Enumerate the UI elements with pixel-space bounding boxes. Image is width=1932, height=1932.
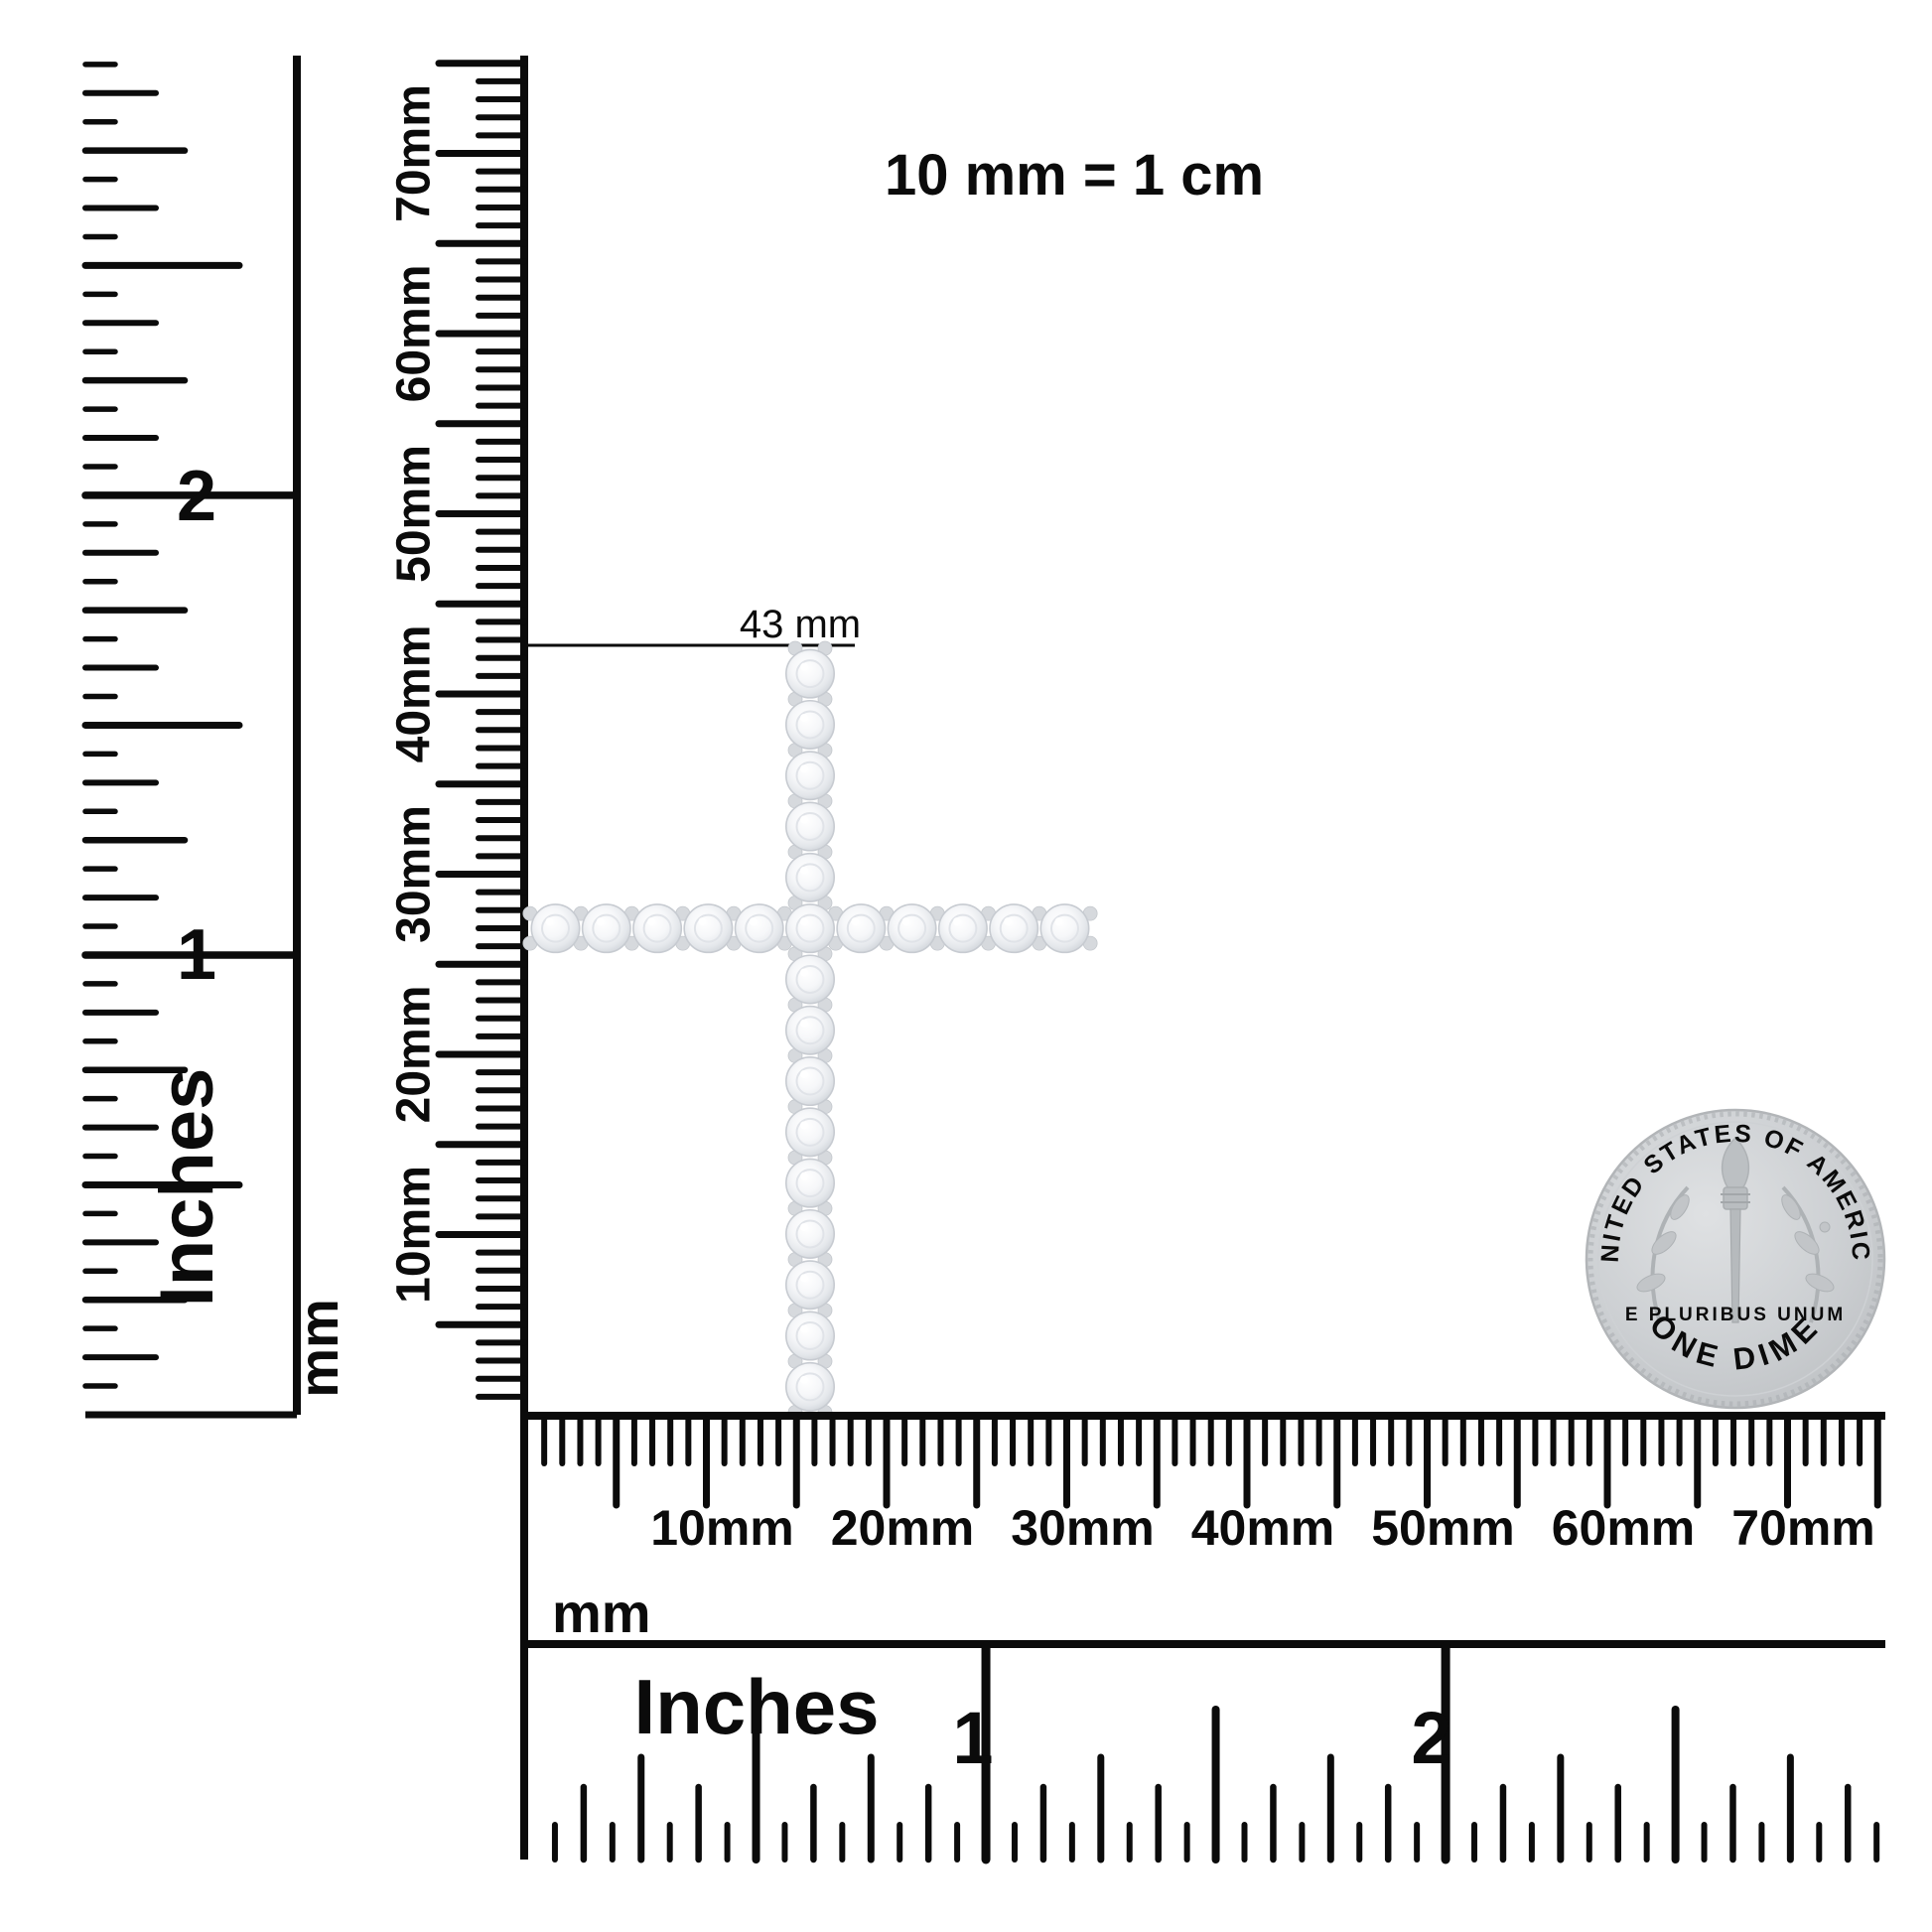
stone-glint xyxy=(800,1223,808,1231)
stone-glint xyxy=(851,917,859,925)
height-annotation-label: 43 mm xyxy=(740,603,861,646)
diamond-stone xyxy=(990,904,1037,952)
mm-label: 50mm xyxy=(388,445,441,583)
diamond-stone xyxy=(888,904,935,952)
left-mm-ruler-labels: 10mm20mm30mm40mm50mm60mm70mm xyxy=(388,84,441,1304)
left-mm-ruler-ticks xyxy=(439,64,524,1397)
stone-glint xyxy=(800,867,808,875)
diamond-stone xyxy=(939,904,987,952)
stone-glint xyxy=(800,1173,808,1180)
diamond-stone xyxy=(786,701,834,749)
dime-coin: UNITED STATES OF AMERICA ONE DIME E PLUR… xyxy=(0,0,1884,1408)
diamond-stone xyxy=(786,1159,834,1206)
left-inch-numeral-2: 2 xyxy=(177,457,216,536)
bottom-inch-numeral-1: 1 xyxy=(952,1697,993,1779)
measurement-photo: 1 2 Inches 10mm20mm30mm40mm50mm60mm70mm … xyxy=(0,0,1932,1932)
stone-glint xyxy=(800,1325,808,1333)
bottom-mm-ruler-ticks xyxy=(544,1420,1877,1505)
cross-pendant xyxy=(523,641,1097,1420)
diamond-stone xyxy=(786,1108,834,1156)
stone-glint xyxy=(953,917,961,925)
diamond-stone xyxy=(786,854,834,901)
dime-middle-text: E PLURIBUS UNUM xyxy=(1625,1305,1846,1325)
diamond-stone xyxy=(786,802,834,850)
diamond-stone xyxy=(786,649,834,697)
stone-glint xyxy=(750,917,758,925)
stone-glint xyxy=(1004,917,1012,925)
bottom-mm-ruler-labels: 10mm20mm30mm40mm50mm60mm70mm xyxy=(650,1500,1875,1556)
stone-glint xyxy=(647,917,655,925)
diamond-stone xyxy=(786,955,834,1003)
mm-label: 10mm xyxy=(650,1500,794,1556)
left-inch-ruler: 1 2 Inches xyxy=(85,56,297,1415)
diamond-stone xyxy=(633,904,681,952)
scene: 1 2 Inches 10mm20mm30mm40mm50mm60mm70mm … xyxy=(0,0,1932,1932)
diamond-stone xyxy=(786,1311,834,1359)
diamond-stone xyxy=(1040,904,1088,952)
stone-glint xyxy=(902,917,910,925)
bottom-mm-ruler-caption: mm xyxy=(552,1582,651,1644)
bottom-inch-ruler-caption: Inches xyxy=(633,1663,879,1750)
diamond-stone xyxy=(786,1363,834,1411)
left-inch-ruler-caption: Inches xyxy=(145,1068,229,1308)
mm-label: 30mm xyxy=(388,805,441,943)
mm-label: 20mm xyxy=(388,986,441,1124)
bottom-mm-ruler: 10mm20mm30mm40mm50mm60mm70mm mm xyxy=(524,1416,1885,1644)
stone-glint xyxy=(698,917,706,925)
stone-glint xyxy=(800,714,808,722)
left-inch-numeral-1: 1 xyxy=(177,915,216,995)
mm-label: 70mm xyxy=(388,84,441,222)
diamond-stone xyxy=(736,904,783,952)
mm-label: 40mm xyxy=(1191,1500,1335,1556)
stone-glint xyxy=(1055,917,1063,925)
stone-glint xyxy=(800,1121,808,1129)
mm-label: 10mm xyxy=(388,1166,441,1304)
bottom-inch-ruler: Inches 1 2 xyxy=(524,1644,1885,1860)
scale-note: 10 mm = 1 cm xyxy=(885,143,1264,207)
mm-label: 20mm xyxy=(831,1500,975,1556)
stone-glint xyxy=(800,1274,808,1282)
mm-label: 50mm xyxy=(1371,1500,1515,1556)
stone-glint xyxy=(800,1020,808,1028)
stone-glint xyxy=(800,917,808,925)
diamond-stone xyxy=(786,904,834,952)
left-mm-ruler-caption: mm xyxy=(287,1299,349,1398)
stone-glint xyxy=(800,1376,808,1384)
mm-label: 60mm xyxy=(1552,1500,1696,1556)
diamond-stone xyxy=(786,1210,834,1258)
stone-glint xyxy=(800,816,808,824)
stone-glint xyxy=(800,764,808,772)
stone-glint xyxy=(800,663,808,671)
stone-glint xyxy=(546,917,554,925)
diamond-stone xyxy=(837,904,885,952)
mm-label: 30mm xyxy=(1011,1500,1155,1556)
diamond-stone xyxy=(786,1261,834,1309)
bottom-inch-numeral-2: 2 xyxy=(1411,1697,1451,1779)
diamond-stone xyxy=(786,1007,834,1054)
mm-label: 70mm xyxy=(1731,1500,1875,1556)
diamond-stone xyxy=(531,904,579,952)
mm-label: 60mm xyxy=(388,265,441,403)
stone-glint xyxy=(597,917,605,925)
stone-glint xyxy=(800,1070,808,1078)
diamond-stone xyxy=(786,752,834,799)
mm-label: 40mm xyxy=(388,625,441,763)
stone-glint xyxy=(800,968,808,976)
left-mm-ruler: 10mm20mm30mm40mm50mm60mm70mm mm xyxy=(287,56,524,1860)
height-annotation: 43 mm xyxy=(524,603,861,646)
diamond-stone xyxy=(684,904,732,952)
diamond-stone xyxy=(786,1057,834,1105)
diamond-stone xyxy=(583,904,630,952)
